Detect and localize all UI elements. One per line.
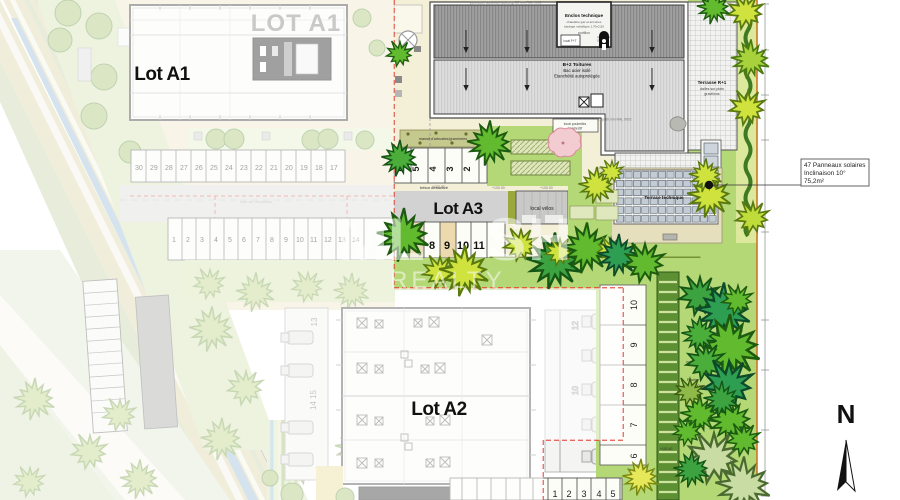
svg-text:4: 4 xyxy=(596,489,601,499)
svg-text:75,2m²: 75,2m² xyxy=(804,178,824,185)
svg-text:Lot A2: Lot A2 xyxy=(411,399,466,420)
svg-text:+100.00: +100.00 xyxy=(492,186,505,190)
svg-text:5: 5 xyxy=(411,166,421,171)
svg-text:Etanchéité autoprotégée: Etanchéité autoprotégée xyxy=(554,74,600,79)
svg-text:ML: ML xyxy=(338,206,425,273)
svg-text:dalles sur plots: dalles sur plots xyxy=(700,87,724,91)
svg-text:local F+T: local F+T xyxy=(563,39,576,43)
svg-text:Bac acier isolé: Bac acier isolé xyxy=(563,68,591,73)
svg-text:47 Panneaux solaires: 47 Panneaux solaires xyxy=(804,162,865,169)
svg-text:gravillons: gravillons xyxy=(704,92,719,96)
svg-text:N: N xyxy=(837,399,856,429)
svg-text:8: 8 xyxy=(429,240,435,252)
svg-text:Lot A1: Lot A1 xyxy=(134,64,190,85)
svg-text:bardage métallique 1,70×2,50: bardage métallique 1,70×2,50 xyxy=(564,25,604,29)
svg-text:2: 2 xyxy=(566,489,571,499)
svg-text:chaudière gaz et armoires: chaudière gaz et armoires xyxy=(567,20,602,24)
svg-text:1: 1 xyxy=(552,489,557,499)
svg-text:2: 2 xyxy=(462,166,472,171)
svg-text:massif d'arbustes/graminées: massif d'arbustes/graminées xyxy=(419,137,467,141)
svg-text:Terrase technique: Terrase technique xyxy=(644,195,684,200)
svg-text:+100.00: +100.00 xyxy=(540,186,553,190)
svg-text:3: 3 xyxy=(445,166,455,171)
svg-text:+100.40: +100.40 xyxy=(660,447,672,451)
svg-text:local poubelles: local poubelles xyxy=(564,122,587,126)
svg-text:SH: SH xyxy=(486,206,573,273)
svg-text:11: 11 xyxy=(473,240,485,252)
svg-text:Lot A3: Lot A3 xyxy=(433,199,482,218)
svg-text:10: 10 xyxy=(629,300,639,310)
svg-text:REALTY: REALTY xyxy=(390,267,506,294)
svg-text:7: 7 xyxy=(629,422,639,427)
svg-text:9: 9 xyxy=(629,342,639,347)
svg-text:panneaux sandwich isolés ép 8: panneaux sandwich isolés ép 80 mm RAL 90… xyxy=(470,0,542,4)
svg-text:4: 4 xyxy=(428,166,438,171)
svg-text:Inclinaison 10°: Inclinaison 10° xyxy=(804,169,846,177)
svg-text:3: 3 xyxy=(581,489,586,499)
svg-text:6: 6 xyxy=(629,453,639,458)
svg-text:8: 8 xyxy=(629,382,639,387)
svg-text:5: 5 xyxy=(610,489,615,499)
svg-text:Terrasse R+1: Terrasse R+1 xyxy=(698,80,727,85)
svg-text:9: 9 xyxy=(444,240,450,252)
svg-text:+100.00: +100.00 xyxy=(432,185,445,189)
svg-text:portillon: portillon xyxy=(578,31,590,35)
svg-text:Enclos technique: Enclos technique xyxy=(565,13,603,18)
